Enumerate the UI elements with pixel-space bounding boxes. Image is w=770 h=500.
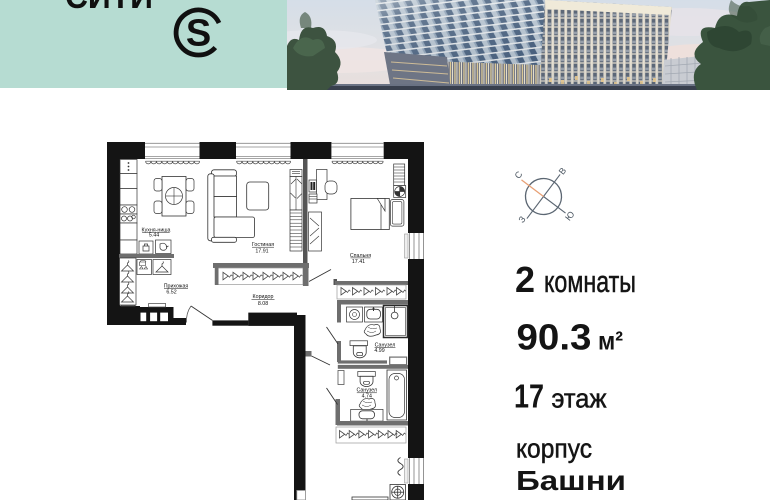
svg-text:Ю: Ю [563, 209, 576, 222]
svg-text:корпус: корпус [516, 434, 592, 464]
svg-text:комнаты: комнаты [544, 264, 636, 299]
svg-text:этаж: этаж [552, 384, 607, 414]
svg-text:С: С [513, 169, 525, 181]
svg-text:17.91: 17.91 [255, 249, 268, 255]
svg-text:S: S [186, 13, 211, 55]
svg-text:5.44: 5.44 [149, 233, 159, 239]
svg-text:17.41: 17.41 [352, 259, 365, 265]
svg-text:6.52: 6.52 [166, 290, 176, 296]
svg-text:90.3: 90.3 [517, 317, 592, 358]
svg-text:В: В [557, 166, 569, 177]
svg-text:8.08: 8.08 [258, 301, 268, 307]
svg-text:м²: м² [598, 326, 623, 356]
svg-text:2: 2 [515, 259, 535, 300]
svg-text:З: З [516, 214, 527, 224]
svg-text:17: 17 [514, 378, 544, 415]
svg-text:4.99: 4.99 [374, 348, 384, 354]
svg-text:СИТИ: СИТИ [65, 0, 153, 16]
svg-text:Башни: Башни [516, 465, 626, 496]
